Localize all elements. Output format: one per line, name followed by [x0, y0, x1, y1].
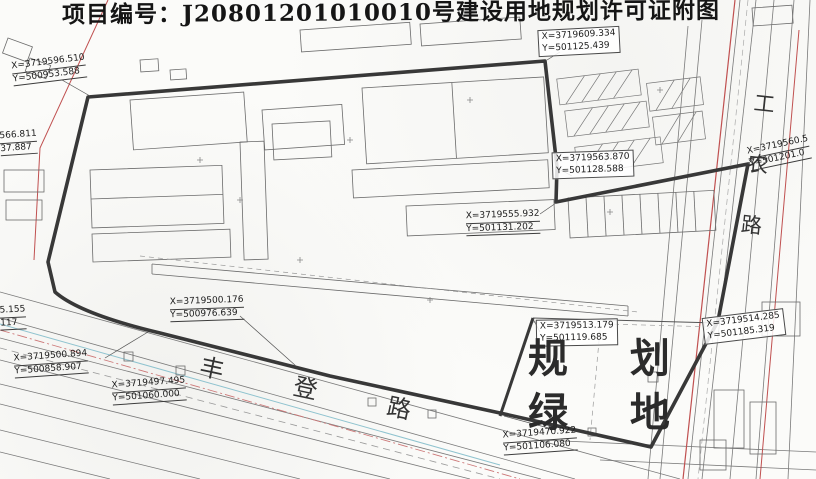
sheet-title: 项目编号：J20801201010010号建设用地规划许可证附图: [62, 0, 762, 29]
coord-label-9: X=3719500.894 Y=500858.907: [13, 348, 88, 378]
coord-label-3: X=3719563.870 Y=501128.588: [552, 150, 635, 180]
coord-label-7: 566.811 37.887: [0, 129, 38, 157]
green-space-label-line1: 规 划: [528, 332, 658, 386]
coord-label-10: X=3719497.495 Y=501060.000: [111, 375, 186, 405]
planning-map-sheet: 项目编号：J20801201010010号建设用地规划许可证附图 X=37195…: [0, 0, 816, 479]
green-space-label: 规 划 绿 地: [528, 332, 658, 440]
coord-label-8: 5.155 117: [0, 304, 26, 331]
coord-label-2: X=3719609.334 Y=501125.439: [537, 26, 620, 58]
coord-label-6: X=3719500.176 Y=500976.639: [170, 295, 245, 323]
red-line-topleft: [34, 0, 108, 260]
coord-label-5: X=3719555.932 Y=501131.202: [466, 209, 541, 237]
green-space-label-line2: 绿 地: [528, 386, 658, 440]
